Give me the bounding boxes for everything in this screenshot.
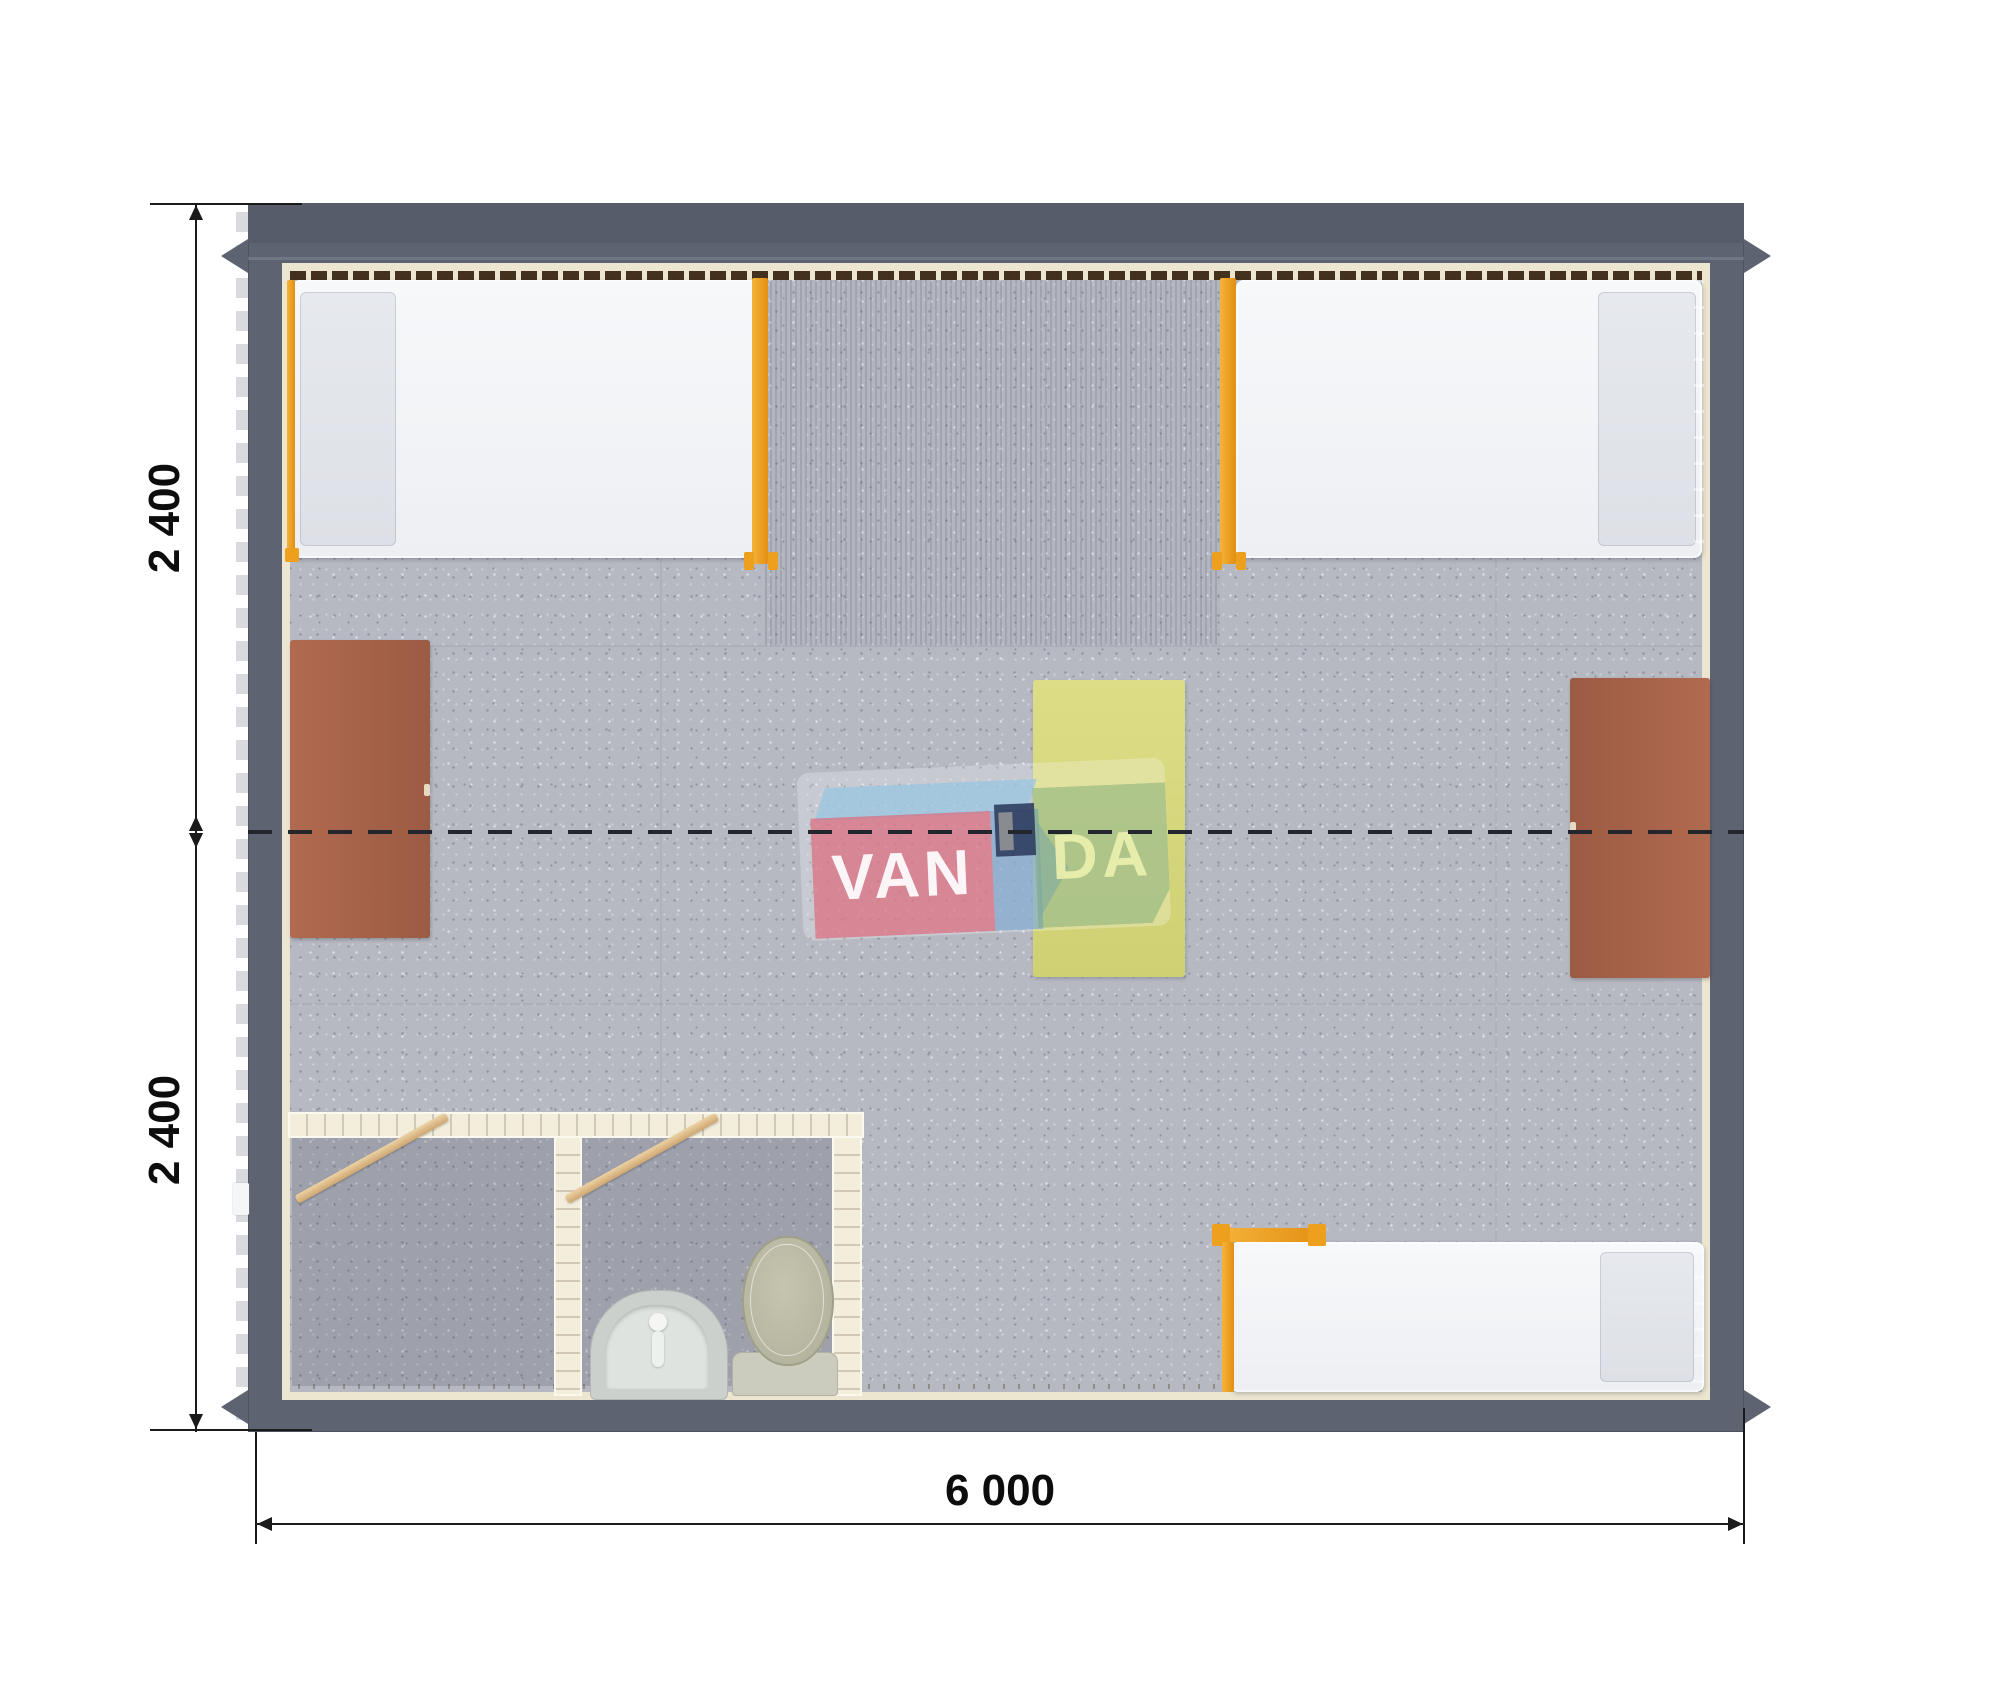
faucet-stem <box>652 1331 664 1367</box>
bed-top-right-foot-rail <box>1220 278 1236 564</box>
dim-arrow <box>189 205 203 220</box>
bed-top-left-pillow <box>300 292 396 546</box>
bed-bottom-right-pillow <box>1600 1252 1694 1382</box>
vanda-watermark: VAN DA <box>796 757 1183 948</box>
watermark-green-box: DA <box>1032 782 1171 928</box>
desk-left <box>290 640 430 938</box>
desk-left-handle <box>424 784 430 796</box>
bed-top-left-head-rail <box>287 280 295 562</box>
dim-arrow <box>189 833 203 848</box>
floor-texture-strip <box>765 280 1220 645</box>
watermark-text-van: VAN <box>830 835 975 915</box>
bathroom-wall-horizontal <box>288 1112 864 1138</box>
extension-line-top-left <box>150 203 302 205</box>
bed-top-right-foot-post <box>1212 552 1222 570</box>
dim-arrow <box>1728 1517 1743 1531</box>
entry-room-floor <box>292 1136 556 1386</box>
faucet-icon <box>649 1313 667 1331</box>
desk-right <box>1570 678 1710 978</box>
corner-fitting-top-right <box>1744 239 1771 273</box>
roof-bevel-line <box>248 257 1744 260</box>
exterior-door-handle <box>233 1183 249 1215</box>
dimension-label-left-bottom: 2 400 <box>140 1030 190 1230</box>
dim-arrow <box>189 816 203 831</box>
bed-bottom-right-head-rail <box>1694 1250 1704 1392</box>
bed-top-right-head-rail <box>1694 280 1704 560</box>
bed-top-left-foot-post <box>744 552 754 570</box>
bed-bottom-right-post <box>1308 1224 1326 1246</box>
bed-top-right-foot-post <box>1236 552 1246 570</box>
floor-seam <box>290 645 1702 647</box>
dimension-label-left-top: 2 400 <box>140 418 190 618</box>
watermark-text-da: DA <box>1050 816 1154 894</box>
bed-top-left-foot-rail <box>752 278 768 564</box>
extension-line-bottom-left <box>150 1429 312 1431</box>
floor-seam <box>290 1003 1702 1005</box>
bed-top-left-foot-post <box>285 548 299 562</box>
bed-top-right-pillow <box>1598 292 1696 546</box>
exterior-slat-marks <box>236 212 248 1428</box>
toilet-lid-seam <box>750 1244 824 1356</box>
dim-arrow <box>257 1517 272 1531</box>
module-joint-dashed-line <box>248 830 1744 834</box>
sink <box>590 1290 728 1400</box>
window-glazing-band <box>290 271 1702 280</box>
bathroom-wall-divider <box>554 1136 582 1396</box>
bed-bottom-right-foot-rail <box>1222 1242 1234 1392</box>
dim-arrow <box>189 1414 203 1429</box>
roof-edge-band <box>248 203 1744 243</box>
toilet <box>742 1236 834 1366</box>
corner-fitting-top-left <box>221 239 248 273</box>
corner-fitting-bottom-right <box>1744 1390 1771 1424</box>
floor-plan-canvas: VAN DA 2 400 2 400 6 000 <box>0 0 2000 1701</box>
extension-line-bottom-end <box>1743 1408 1745 1544</box>
bed-top-left-foot-post <box>768 552 778 570</box>
dimension-line-bottom <box>256 1523 1744 1525</box>
dimension-label-bottom: 6 000 <box>900 1466 1100 1516</box>
corner-fitting-bottom-left <box>221 1390 248 1424</box>
